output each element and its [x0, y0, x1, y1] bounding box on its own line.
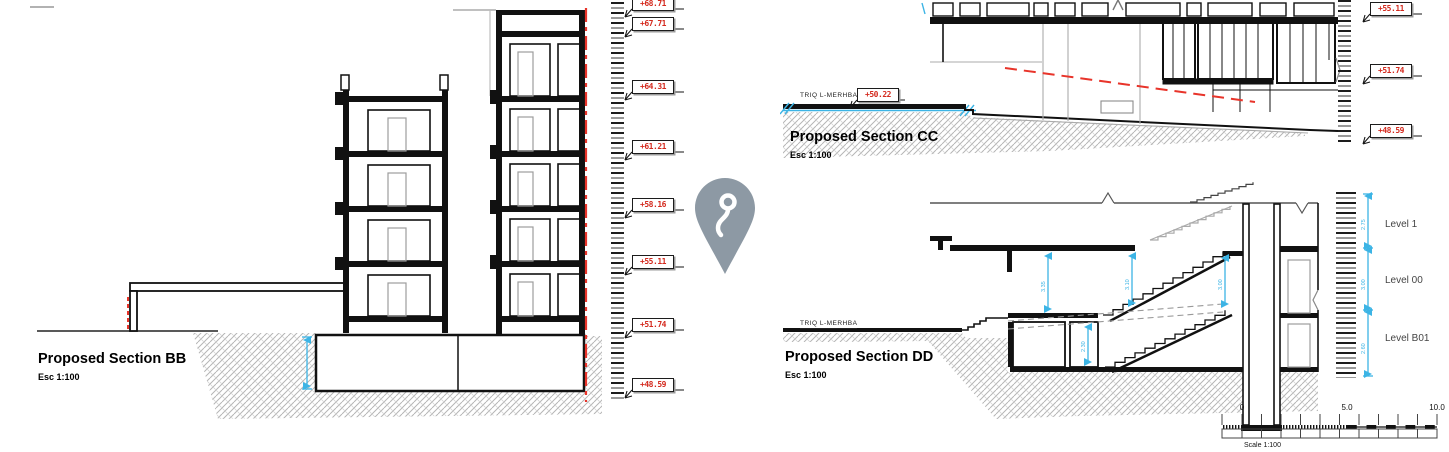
scale-tick-label: 10.0	[1429, 403, 1445, 412]
level-height-value: 2.75	[1361, 219, 1367, 230]
scale-tick-label: 0	[1240, 403, 1244, 412]
right-tower	[453, 10, 585, 335]
elevation-value: +48.59	[1370, 124, 1412, 138]
street-elevation-marker: +50.22	[847, 87, 913, 113]
section-dd-scale: Esc 1:100	[785, 370, 827, 380]
left-tower	[335, 75, 448, 333]
elevation-marker: +55.11	[622, 254, 688, 280]
level-label-00: Level 00	[1385, 275, 1423, 286]
elevation-marker: +67.71	[622, 16, 688, 42]
elevation-value: +67.71	[632, 17, 674, 31]
elevation-value: +48.59	[632, 378, 674, 392]
right-rooms	[1288, 203, 1318, 372]
entry-steps	[962, 318, 1008, 330]
section-dd-title: Proposed Section DD	[785, 349, 933, 365]
elevation-value: +55.11	[632, 255, 674, 269]
elevation-value: +50.22	[857, 88, 899, 102]
elevation-marker: +48.59	[1360, 123, 1426, 149]
level-label-b01: Level B01	[1385, 333, 1429, 344]
level-label-1: Level 1	[1385, 219, 1417, 230]
elevation-value: +58.16	[632, 198, 674, 212]
elevation-marker: +51.74	[622, 317, 688, 343]
door-openings	[518, 52, 533, 316]
elevation-marker: +58.16	[622, 197, 688, 223]
lift-shaft	[1241, 204, 1282, 431]
elevation-value: +64.31	[632, 80, 674, 94]
elevation-value: +51.74	[632, 318, 674, 332]
street-label-dd: TRIQ L-MERHBA	[800, 320, 857, 329]
stair-dim-value: 3.10	[1125, 279, 1131, 290]
cut-rooms	[1163, 23, 1340, 112]
stair-dim-value: 3.00	[1218, 279, 1224, 290]
window-frames	[368, 110, 430, 316]
location-pin-icon[interactable]	[694, 177, 756, 277]
elevation-marker: +55.11	[1360, 1, 1426, 27]
stair-dim-value: 2.30	[1081, 341, 1087, 352]
break-symbol	[1296, 203, 1308, 213]
elevation-value: +55.11	[1370, 2, 1412, 16]
drawing-sheet: 3.35 3.10 3.00 2.30 2.75 3.00 2.60 Level…	[0, 0, 1449, 452]
section-bb-scale: Esc 1:100	[38, 372, 80, 382]
section-cc-title: Proposed Section CC	[790, 129, 938, 145]
level-height-value: 2.60	[1361, 343, 1367, 354]
elevation-marker: +51.74	[1360, 63, 1426, 89]
elevation-value: +68.71	[632, 0, 674, 11]
left-extension	[130, 283, 345, 331]
stair-flights	[1103, 182, 1253, 372]
elevation-marker: +61.21	[622, 139, 688, 165]
door-openings	[388, 118, 406, 316]
level-dimension-line: 2.75 3.00 2.60	[1360, 190, 1378, 384]
scale-bar: 0 5.0 10.0	[1220, 403, 1448, 451]
elevation-value: +51.74	[1370, 64, 1412, 78]
elevation-marker: +64.31	[622, 79, 688, 105]
section-cc-scale: Esc 1:100	[790, 150, 832, 160]
street-label-cc: TRIQ L-MERHBA	[800, 92, 857, 99]
basement-structure	[316, 335, 584, 391]
elevation-ruler-dd	[1336, 192, 1356, 378]
stair-dim-value: 3.35	[1041, 281, 1047, 292]
break-symbol	[1102, 193, 1114, 203]
upper-window-row	[933, 0, 1334, 16]
scale-bar-graphic	[1220, 414, 1444, 440]
level-height-value: 3.00	[1361, 279, 1367, 290]
window-frames	[510, 44, 580, 316]
scale-tick-label: 5.0	[1341, 403, 1352, 412]
scale-bar-caption: Scale 1:100	[1244, 442, 1281, 449]
elevation-marker: +48.59	[622, 377, 688, 403]
section-bb-title: Proposed Section BB	[38, 351, 186, 367]
elevation-ruler-cc	[1338, 0, 1351, 145]
elevation-value: +61.21	[632, 140, 674, 154]
